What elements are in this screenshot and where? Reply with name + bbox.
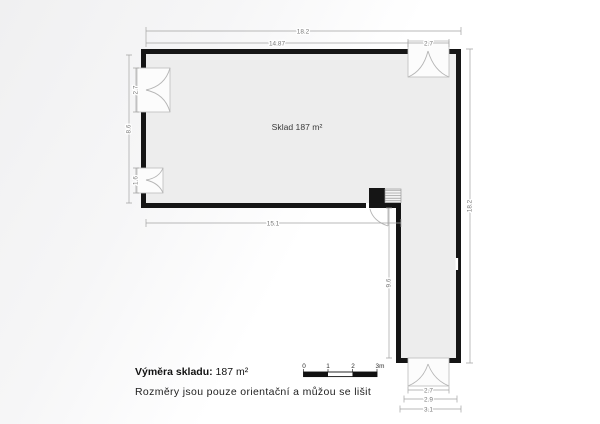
- door-swing-arc: [370, 209, 388, 226]
- scale-bar-segment: [353, 372, 378, 377]
- scale-tick-label-2: 2: [351, 363, 355, 370]
- door-frame: [408, 358, 449, 386]
- door-bottom-right: [408, 358, 449, 386]
- scale-tick-label-3: 3m: [376, 363, 385, 370]
- scale-bar: 0 1 2 3m: [302, 363, 384, 377]
- dimension-label-bottom-mid: 2.9: [424, 396, 433, 403]
- wall-leg-left: [396, 203, 401, 363]
- dimension-label-bottom-door: 2.7: [424, 387, 433, 394]
- door-left-top: [137, 68, 170, 112]
- wall-leg-bottom-1: [396, 358, 408, 363]
- dimension-label-top-total: 18.2: [297, 28, 310, 35]
- scale-tick-label-1: 1: [326, 363, 330, 370]
- dimension-label-left-door-bottom: 1.6: [133, 176, 140, 185]
- wall-left-2: [141, 112, 146, 168]
- dimension-label-top-door: 2.7: [424, 40, 433, 47]
- wall-bottom-upper-1: [141, 203, 366, 208]
- floor-plan: 18.2 14.87 2.7 8.6 2.7 1.6 15.1 9.6 18.2…: [0, 0, 600, 424]
- dimension-label-left-door-top: 2.7: [133, 85, 140, 94]
- door-frame: [137, 168, 163, 193]
- wall-right-notch: [456, 258, 459, 270]
- area-summary: Výměra skladu: 187 m²: [135, 366, 248, 378]
- dimension-label-top-left: 14.87: [269, 40, 285, 47]
- wall-top: [141, 49, 408, 54]
- door-left-bottom: [137, 168, 163, 193]
- dimension-label-bottom-upper: 15.1: [267, 220, 280, 227]
- dimension-label-leg-inner: 9.6: [386, 278, 393, 287]
- area-summary-value: 187 m²: [216, 366, 249, 378]
- area-summary-label: Výměra skladu:: [135, 366, 213, 378]
- wall-right: [456, 49, 461, 363]
- scale-tick-label-0: 0: [302, 363, 306, 370]
- dimension-label-right-total: 18.2: [467, 199, 474, 212]
- room-area-label: Sklad 187 m²: [272, 122, 323, 132]
- scale-bar-segment: [304, 372, 329, 377]
- door-frame: [137, 68, 170, 112]
- wall-pillar: [369, 188, 385, 203]
- wall-leg-bottom-2: [449, 358, 461, 363]
- wall-left-1: [141, 49, 146, 68]
- disclaimer-text: Rozměry jsou pouze orientační a můžou se…: [135, 386, 371, 398]
- dimension-label-left-total: 8.6: [126, 124, 133, 133]
- dimension-label-bottom-outer: 3.1: [424, 406, 433, 413]
- shaft-hatch: [385, 189, 401, 203]
- floor-plan-page: 18.2 14.87 2.7 8.6 2.7 1.6 15.1 9.6 18.2…: [0, 0, 600, 424]
